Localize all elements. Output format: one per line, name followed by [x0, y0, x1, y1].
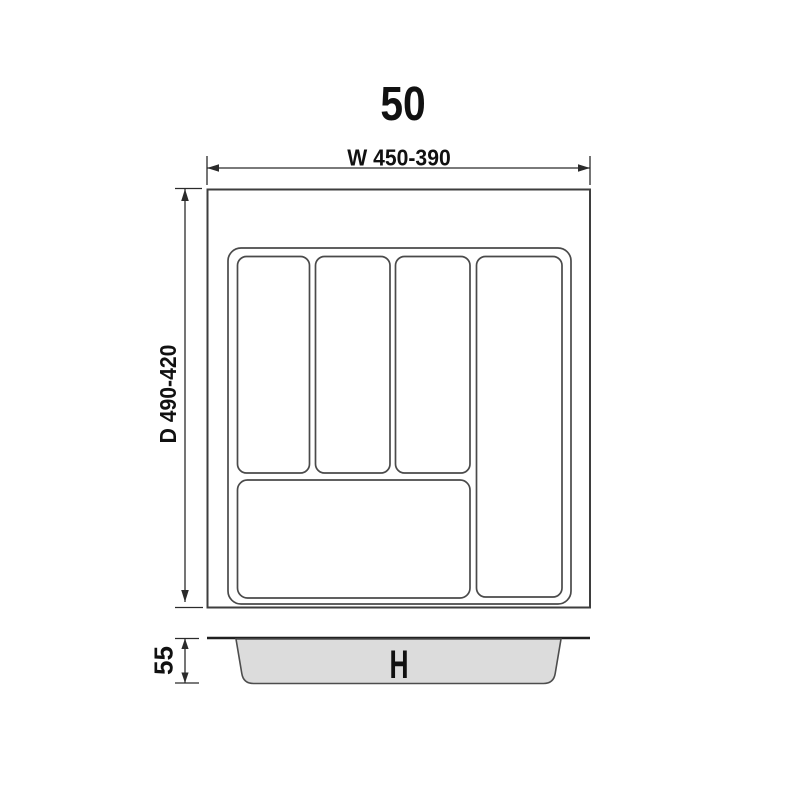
depth-dimension: D 490-420: [155, 189, 203, 608]
compartment-bottom-wide: [238, 480, 471, 598]
width-dimension: W 450-390: [207, 145, 590, 185]
width-dim-arrow-left: [207, 164, 219, 172]
tray-inner-edge: [228, 248, 571, 604]
height-dim-arrow-top: [181, 639, 188, 650]
depth-dim-label: D 490-420: [155, 345, 181, 444]
height-letter-label: H: [389, 643, 408, 688]
compartment-2: [316, 257, 391, 474]
width-dim-arrow-right: [578, 164, 590, 172]
compartment-right-tall: [477, 257, 563, 598]
top-view: [208, 190, 591, 608]
compartment-1: [238, 257, 310, 474]
side-view: H: [207, 638, 590, 687]
height-dim-arrow-bottom: [181, 673, 188, 684]
drawing-title: 50: [380, 78, 425, 131]
tray-outer-outline: [208, 190, 591, 608]
cutlery-tray-dimension-drawing: 50 W 450-390: [0, 0, 800, 800]
height-dimension: 55: [149, 639, 200, 684]
depth-dim-arrow-bottom: [181, 590, 189, 602]
height-dim-label: 55: [149, 646, 179, 675]
depth-dim-arrow-top: [181, 189, 189, 201]
drawing-canvas: 50 W 450-390: [0, 0, 800, 800]
width-dim-label: W 450-390: [347, 145, 450, 171]
compartment-3: [396, 257, 471, 474]
